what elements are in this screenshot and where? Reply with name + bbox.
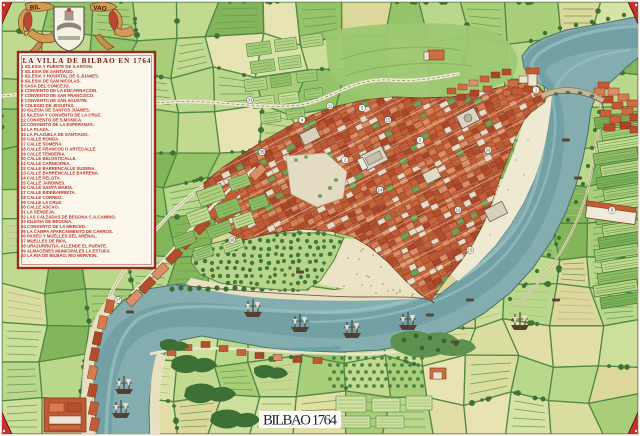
svg-text:37: 37 [116, 298, 121, 303]
svg-text:11: 11 [328, 104, 333, 109]
svg-text:33: 33 [248, 98, 253, 103]
svg-text:15: 15 [386, 118, 391, 123]
svg-text:40 LA RIA DE BILBAO, RIO NERVI: 40 LA RIA DE BILBAO, RIO NERVION. [21, 253, 98, 258]
svg-text:BILBAO 1764: BILBAO 1764 [263, 413, 338, 429]
svg-text:36: 36 [230, 238, 235, 243]
svg-text:30: 30 [486, 148, 491, 153]
svg-text:10: 10 [468, 248, 473, 253]
svg-text:VAO: VAO [93, 5, 107, 13]
svg-text:19: 19 [456, 208, 461, 213]
svg-text:35: 35 [260, 150, 265, 155]
svg-text:BIL: BIL [29, 4, 40, 12]
svg-text:14: 14 [378, 188, 383, 193]
